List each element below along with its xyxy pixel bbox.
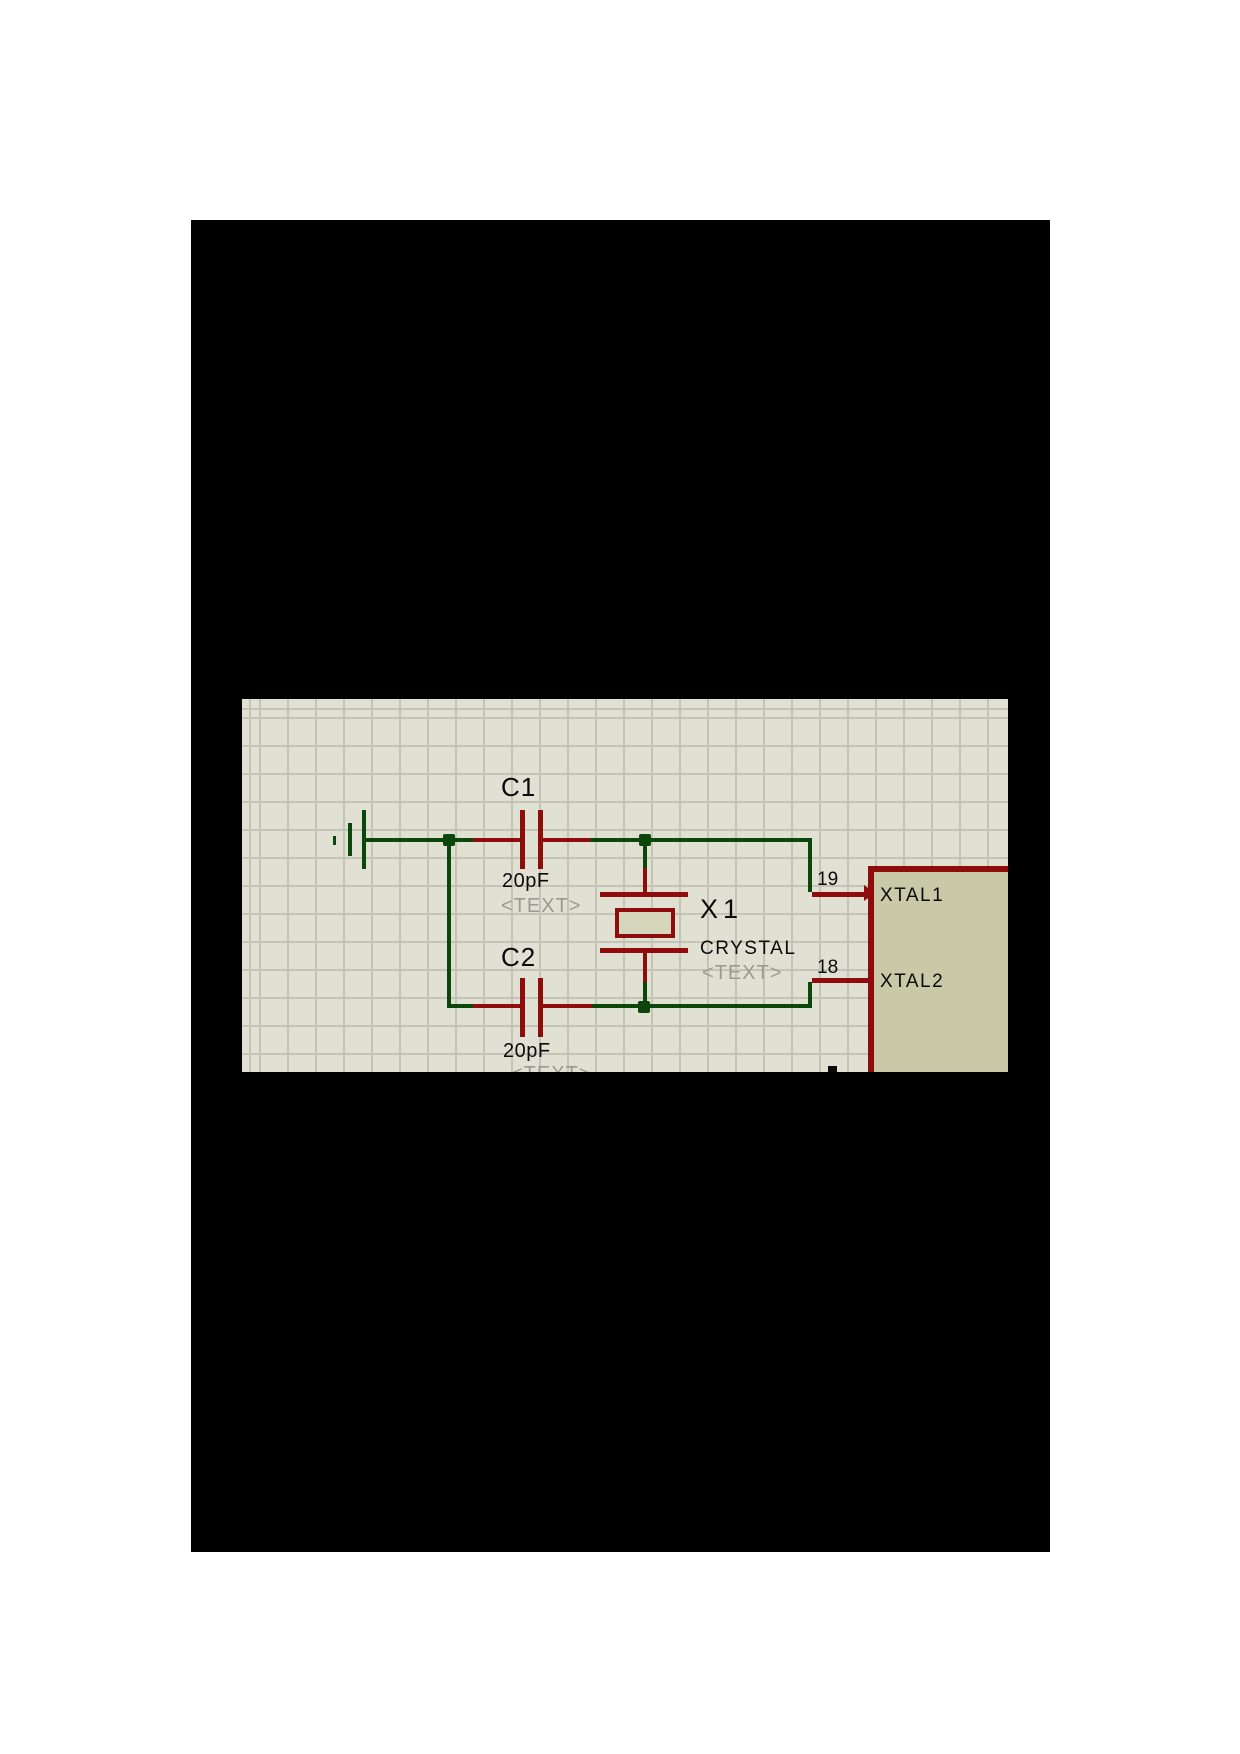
crystal-body — [615, 908, 675, 938]
wire-bottom-left-corner — [447, 1004, 473, 1008]
pin18-stub — [812, 978, 868, 983]
pin19-name-label: XTAL1 — [880, 886, 944, 905]
ground-bar-small — [333, 836, 336, 845]
pin19-stub — [812, 892, 868, 897]
wire-junction2-to-corner — [590, 838, 812, 842]
wire-ground-to-junction1 — [365, 838, 473, 842]
ground-bar-medium — [348, 823, 352, 856]
c2-value-label: 20pF — [503, 1041, 551, 1061]
pin18-name-label: XTAL2 — [880, 972, 944, 991]
pin18-number-label: 18 — [817, 958, 838, 977]
c2-plate-left — [520, 978, 525, 1037]
wire-corner-to-pin18 — [808, 982, 812, 1008]
wire-c2-right-pin — [543, 1004, 592, 1008]
c1-plate-left — [520, 810, 525, 869]
wire-junction3-to-corner — [592, 1004, 812, 1008]
x1-value-label: CRYSTAL — [700, 939, 796, 958]
c2-plate-right — [538, 978, 543, 1037]
crystal-top-pin — [643, 868, 647, 893]
x1-ref-label: X1 — [700, 896, 743, 923]
c2-ref-label: C2 — [501, 944, 536, 970]
c1-plate-right — [538, 810, 543, 869]
c2-text-placeholder: <TEXT> — [511, 1064, 591, 1072]
clipped-pin-number-sliver — [828, 1066, 837, 1072]
wire-c1-right-pin — [543, 838, 590, 842]
crystal-plate-top — [600, 892, 688, 897]
wire-c2-left-pin — [473, 1004, 520, 1008]
wire-corner-to-pin19 — [808, 840, 812, 892]
crystal-top-wire-green — [643, 845, 647, 869]
crystal-bottom-pin — [643, 953, 647, 982]
c1-text-placeholder: <TEXT> — [501, 896, 581, 916]
junction-dot-1 — [443, 834, 455, 846]
crystal-bottom-wire-green — [643, 982, 647, 1005]
canvas: C1 20pF <TEXT> C2 20pF <TEXT> X1 CRYSTAL… — [0, 0, 1240, 1754]
x1-text-placeholder: <TEXT> — [702, 963, 782, 983]
wire-c1-left-pin — [473, 838, 520, 842]
c1-value-label: 20pF — [502, 871, 550, 891]
pin19-number-label: 19 — [817, 870, 838, 889]
c1-ref-label: C1 — [501, 774, 536, 800]
schematic-canvas: C1 20pF <TEXT> C2 20pF <TEXT> X1 CRYSTAL… — [242, 699, 1008, 1072]
wire-left-vertical — [447, 840, 451, 1008]
slide-background: C1 20pF <TEXT> C2 20pF <TEXT> X1 CRYSTAL… — [191, 220, 1050, 1552]
